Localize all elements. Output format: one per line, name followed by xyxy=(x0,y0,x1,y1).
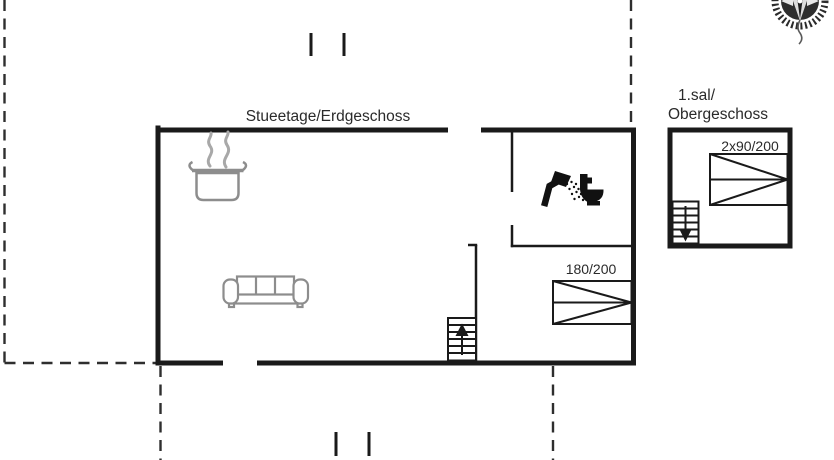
steam-icon xyxy=(208,132,228,167)
sofa-arm-right xyxy=(294,280,309,304)
ground-floor-plan: Stueetage/Erdgeschoss xyxy=(156,108,637,366)
road-tick-marks xyxy=(311,33,369,456)
ground-floor-title: Stueetage/Erdgeschoss xyxy=(246,108,411,125)
floor-plan-drawing: Stueetage/Erdgeschoss xyxy=(0,0,834,460)
upper-floor-title-line1: 1.sal/ xyxy=(678,87,716,104)
ground-floor-interior-walls xyxy=(468,131,632,361)
floor-plan-page: Stueetage/Erdgeschoss xyxy=(0,0,834,460)
pot-handle-left xyxy=(190,162,193,170)
bed-size-label-upper: 2x90/200 xyxy=(721,138,779,154)
stairs-up-icon xyxy=(448,318,476,361)
double-bed-symbol xyxy=(553,281,632,324)
shower-icon xyxy=(545,171,584,203)
double-bed-ground: 180/200 xyxy=(553,261,632,324)
compass-icon xyxy=(775,0,825,44)
upper-floor-title-line2: Obergeschoss xyxy=(668,106,768,123)
double-bed-symbol-upper xyxy=(710,154,788,205)
property-boundary-dashes xyxy=(5,0,632,460)
stairs-down-icon xyxy=(673,202,699,244)
upper-floor-plan: 1.sal/ Obergeschoss 2x90/200 xyxy=(668,87,790,246)
pot-handle-right xyxy=(243,162,246,170)
pot-body xyxy=(197,173,239,200)
bed-size-label-ground: 180/200 xyxy=(566,261,617,277)
sofa-icon xyxy=(224,277,309,308)
sofa-arm-left xyxy=(224,280,239,304)
sofa-seat xyxy=(233,295,299,304)
cooking-pot-icon xyxy=(190,132,247,200)
